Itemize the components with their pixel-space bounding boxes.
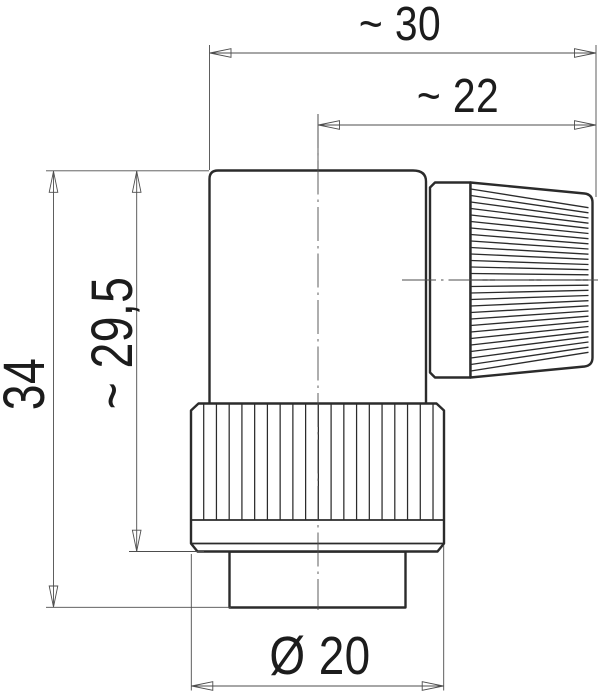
technical-drawing: ~ 30 ~ 22 34 ~ 29,5: [0, 0, 600, 692]
dim-body-height-label: ~ 29,5: [80, 277, 145, 410]
front-spigot: [230, 552, 406, 608]
dim-cable-side-width-label: ~ 22: [417, 70, 499, 123]
dim-cable-side-width: ~ 22: [318, 70, 596, 170]
dim-overall-height-label: 34: [0, 358, 57, 410]
dim-overall-width: ~ 30: [210, 0, 597, 197]
connector-drawing: ~ 30 ~ 22 34 ~ 29,5: [0, 0, 600, 692]
dim-body-height: ~ 29,5: [80, 171, 204, 552]
dim-coupling-diameter-label: Ø 20: [269, 626, 370, 686]
dim-overall-width-label: ~ 30: [359, 0, 441, 51]
